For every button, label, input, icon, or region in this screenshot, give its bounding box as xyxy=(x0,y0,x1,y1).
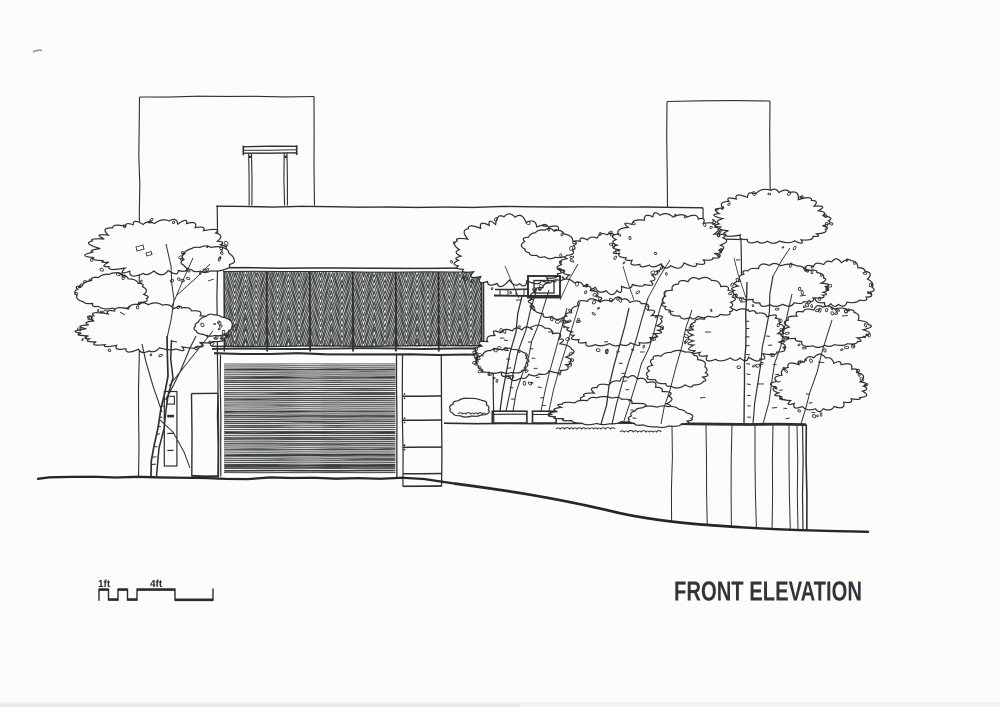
svg-text:4ft: 4ft xyxy=(150,579,163,590)
svg-text:FRONT ELEVATION: FRONT ELEVATION xyxy=(674,576,862,607)
svg-text:1ft: 1ft xyxy=(98,579,111,590)
